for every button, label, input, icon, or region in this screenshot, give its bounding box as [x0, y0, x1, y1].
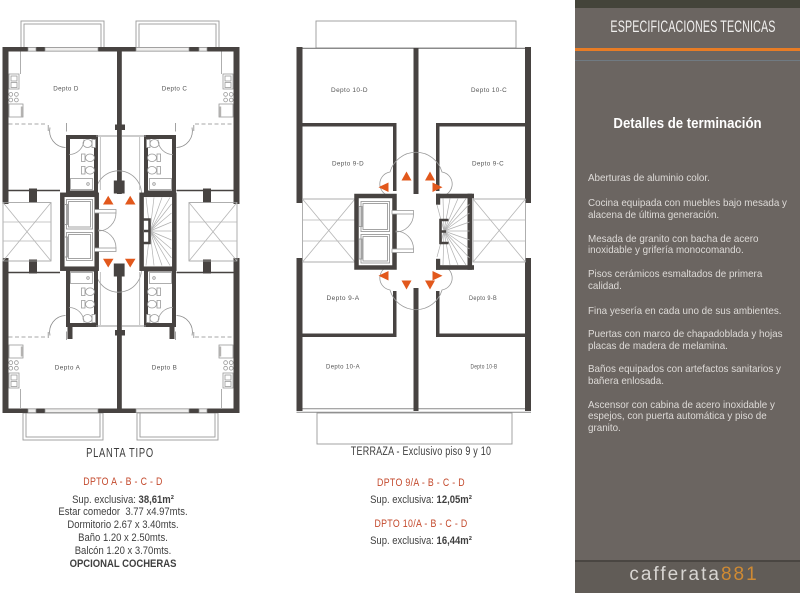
- svg-text:Depto 9-A: Depto 9-A: [327, 295, 360, 302]
- svg-text:Depto 9-C: Depto 9-C: [472, 161, 504, 168]
- svg-text:Depto B: Depto B: [152, 365, 178, 372]
- svg-text:Depto D: Depto D: [53, 86, 79, 93]
- svg-text:Depto 9-B: Depto 9-B: [469, 295, 497, 302]
- svg-text:Depto 10-A: Depto 10-A: [326, 364, 360, 371]
- svg-text:Depto 10-B: Depto 10-B: [471, 364, 498, 371]
- svg-text:Depto A: Depto A: [55, 365, 81, 372]
- svg-text:Depto C: Depto C: [162, 86, 188, 93]
- svg-text:Depto 10-C: Depto 10-C: [471, 87, 507, 94]
- svg-text:Depto 10-D: Depto 10-D: [331, 87, 368, 94]
- svg-text:Depto 9-D: Depto 9-D: [332, 161, 364, 168]
